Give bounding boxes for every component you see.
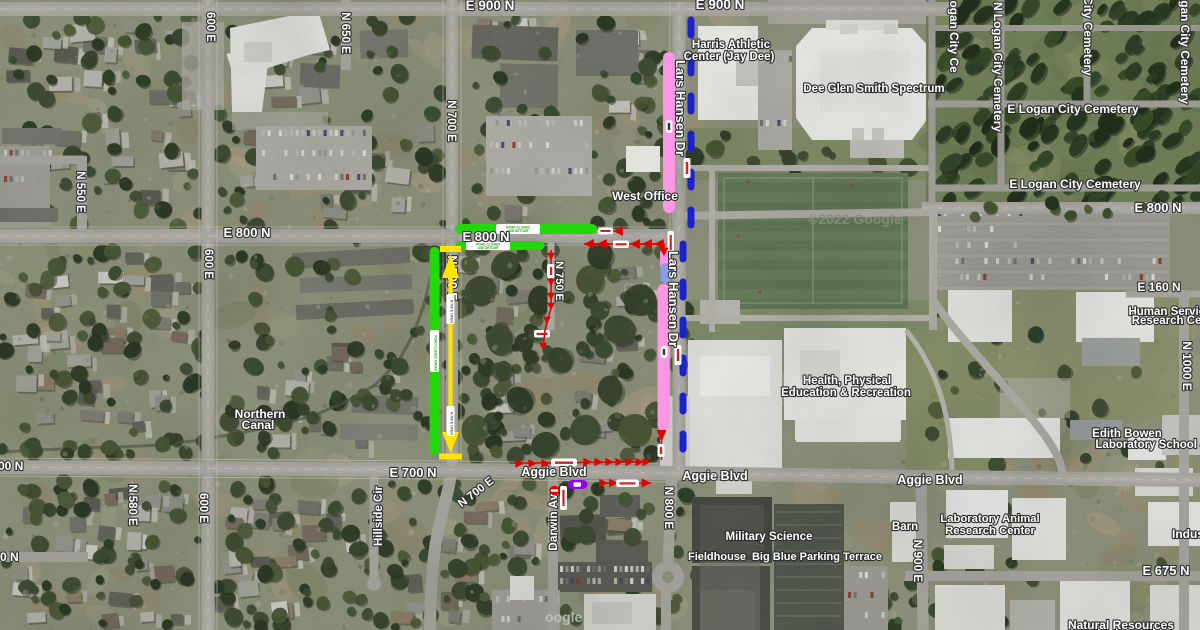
svg-text:West Office: West Office (612, 189, 678, 203)
svg-text:N 700 E OPEN: N 700 E OPEN (450, 300, 454, 323)
svg-text:Dee Glen Smith Spectrum: Dee Glen Smith Spectrum (803, 83, 944, 95)
svg-text:Education & Recreation: Education & Recreation (781, 387, 911, 399)
svg-text:Laboratory Animal: Laboratory Animal (940, 513, 1039, 525)
svg-text:Canal: Canal (242, 418, 275, 432)
svg-text:E Logan City Cemetery: E Logan City Cemetery (1007, 102, 1139, 116)
svg-text:Darwin Ave: Darwin Ave (546, 487, 560, 551)
svg-text:Military Science: Military Science (726, 531, 813, 543)
svg-text:N 700 E: N 700 E (445, 100, 457, 142)
svg-text:Hillside Cir: Hillside Cir (373, 485, 385, 546)
svg-text:00 N: 00 N (0, 459, 23, 473)
svg-text:Fieldhouse: Fieldhouse (688, 551, 746, 563)
svg-text:N 650 E: N 650 E (339, 12, 351, 54)
svg-text:N Logan City Cemetery: N Logan City Cemetery (991, 2, 1005, 132)
svg-text:Logan City Ce: Logan City Ce (947, 0, 961, 73)
svg-text:Health, Physical: Health, Physical (803, 375, 891, 387)
svg-text:E 900 N: E 900 N (466, 0, 515, 13)
svg-text:600 E: 600 E (197, 493, 209, 523)
svg-text:600 E: 600 E (202, 249, 214, 279)
svg-text:E 700 N: E 700 N (390, 465, 437, 480)
svg-text:N 750 E: N 750 E (553, 261, 565, 301)
svg-text:E Logan City Cemetery: E Logan City Cemetery (1009, 177, 1141, 191)
svg-text:Aggie Blvd: Aggie Blvd (897, 473, 962, 487)
svg-text:N 580 E: N 580 E (126, 484, 138, 526)
svg-text:Research Cent: Research Cent (1132, 315, 1200, 327)
svg-text:Laboratory School a: Laboratory School a (1095, 439, 1200, 451)
svg-text:E 800 N: E 800 N (463, 229, 510, 244)
svg-text:Lars Hansen Dr: Lars Hansen Dr (666, 251, 681, 347)
svg-text:600 E: 600 E (204, 12, 216, 42)
svg-text:Natural Resources: Natural Resources (1068, 618, 1174, 630)
svg-text:Aggie Blvd: Aggie Blvd (682, 469, 747, 483)
svg-text:Indus: Indus (1172, 527, 1200, 541)
svg-text:Center (Jay Dee): Center (Jay Dee) (684, 51, 775, 63)
svg-text:Barn: Barn (892, 521, 918, 533)
svg-text:USE DETOUR: USE DETOUR (508, 229, 530, 233)
svg-text:USE DETOUR: USE DETOUR (478, 246, 500, 250)
svg-text:0 N: 0 N (0, 550, 19, 564)
svg-text:Logan City Cemetery: Logan City Cemetery (1178, 0, 1192, 104)
svg-text:N 550 E: N 550 E (74, 171, 86, 213)
svg-text:N 900 E: N 900 E (911, 540, 925, 583)
svg-text:E 900 N: E 900 N (696, 0, 745, 12)
svg-text:E 800 N: E 800 N (1135, 200, 1182, 215)
svg-text:Research Center: Research Center (945, 525, 1035, 537)
svg-text:Big Blue Parking Terrace: Big Blue Parking Terrace (752, 551, 882, 563)
svg-text:Lars Hansen Dr: Lars Hansen Dr (673, 60, 688, 156)
svg-text:oogle: oogle (545, 609, 583, 625)
svg-text:E 160 N: E 160 N (1137, 280, 1180, 294)
svg-text:N 700 E OPEN: N 700 E OPEN (450, 412, 454, 435)
svg-text:E 675 N: E 675 N (1143, 563, 1190, 578)
svg-text:E 800 N: E 800 N (224, 225, 271, 240)
svg-text:ROAD CLOSED AHEAD: ROAD CLOSED AHEAD (434, 335, 438, 371)
svg-text:Aggie Blvd: Aggie Blvd (521, 465, 586, 479)
svg-text:N 1000 E: N 1000 E (1180, 341, 1194, 390)
svg-text:City Cemetery: City Cemetery (1081, 0, 1095, 76)
svg-text:N 800 E: N 800 E (662, 487, 676, 530)
svg-text:©2022 Google: ©2022 Google (808, 211, 902, 227)
svg-text:Harris Athletic: Harris Athletic (692, 39, 771, 51)
